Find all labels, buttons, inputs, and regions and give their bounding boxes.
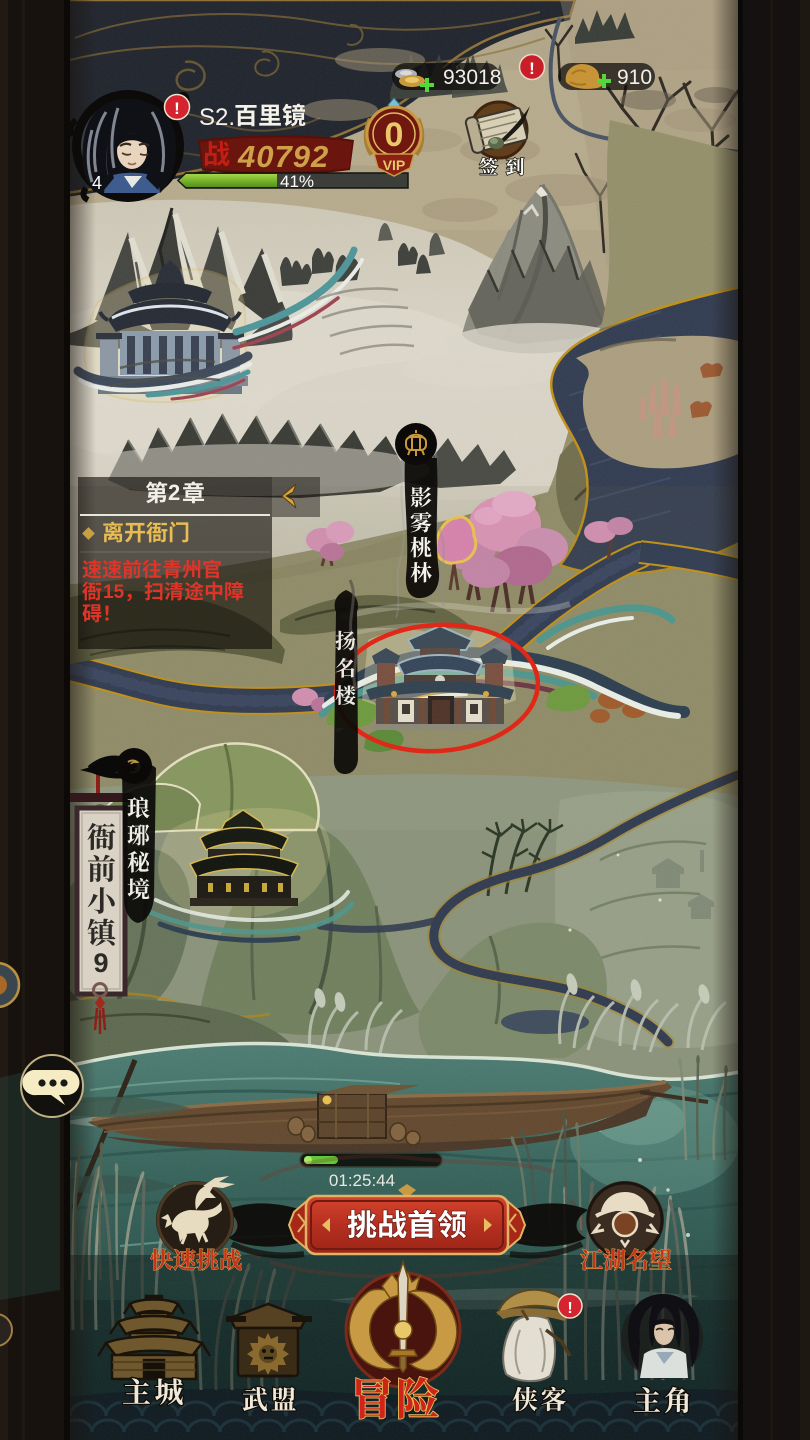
svg-text:41%: 41%	[280, 172, 314, 191]
svg-text:93018: 93018	[443, 66, 501, 89]
svg-text:40792: 40792	[237, 139, 329, 174]
svg-text:!: !	[174, 99, 180, 118]
svg-text:!: !	[567, 1300, 572, 1317]
svg-text:2: 2	[168, 480, 180, 505]
svg-text:VIP: VIP	[383, 157, 406, 173]
svg-text:01:25:44: 01:25:44	[329, 1171, 395, 1190]
svg-text:S2.: S2.	[199, 104, 235, 131]
svg-text:!: !	[529, 59, 535, 78]
svg-text:4: 4	[92, 173, 102, 193]
svg-text:15: 15	[103, 582, 125, 603]
svg-text:910: 910	[617, 66, 652, 89]
svg-text:9: 9	[93, 948, 108, 978]
svg-text:0: 0	[385, 116, 404, 154]
